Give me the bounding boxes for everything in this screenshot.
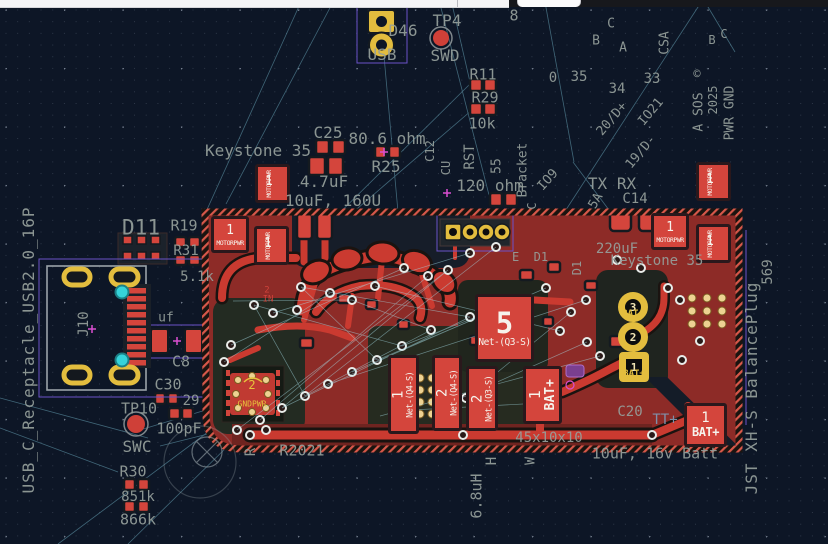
window-chrome-strip <box>0 0 828 7</box>
via-cyan[interactable] <box>116 286 129 299</box>
toolbar-remnant <box>0 0 509 8</box>
toolbar-field-remnant <box>517 0 581 7</box>
tp10-testpoint[interactable] <box>127 415 145 433</box>
via-cyan[interactable] <box>116 354 129 367</box>
pcb-graphics <box>0 0 828 544</box>
origin-marker <box>164 426 236 498</box>
toolbar-divider <box>457 0 458 7</box>
tp4-testpoint[interactable] <box>433 30 449 46</box>
pcb-canvas[interactable]: 1MOTORPWR1MOTORPWR1MOTORPWR1MOTORPWR1MOT… <box>0 0 828 544</box>
